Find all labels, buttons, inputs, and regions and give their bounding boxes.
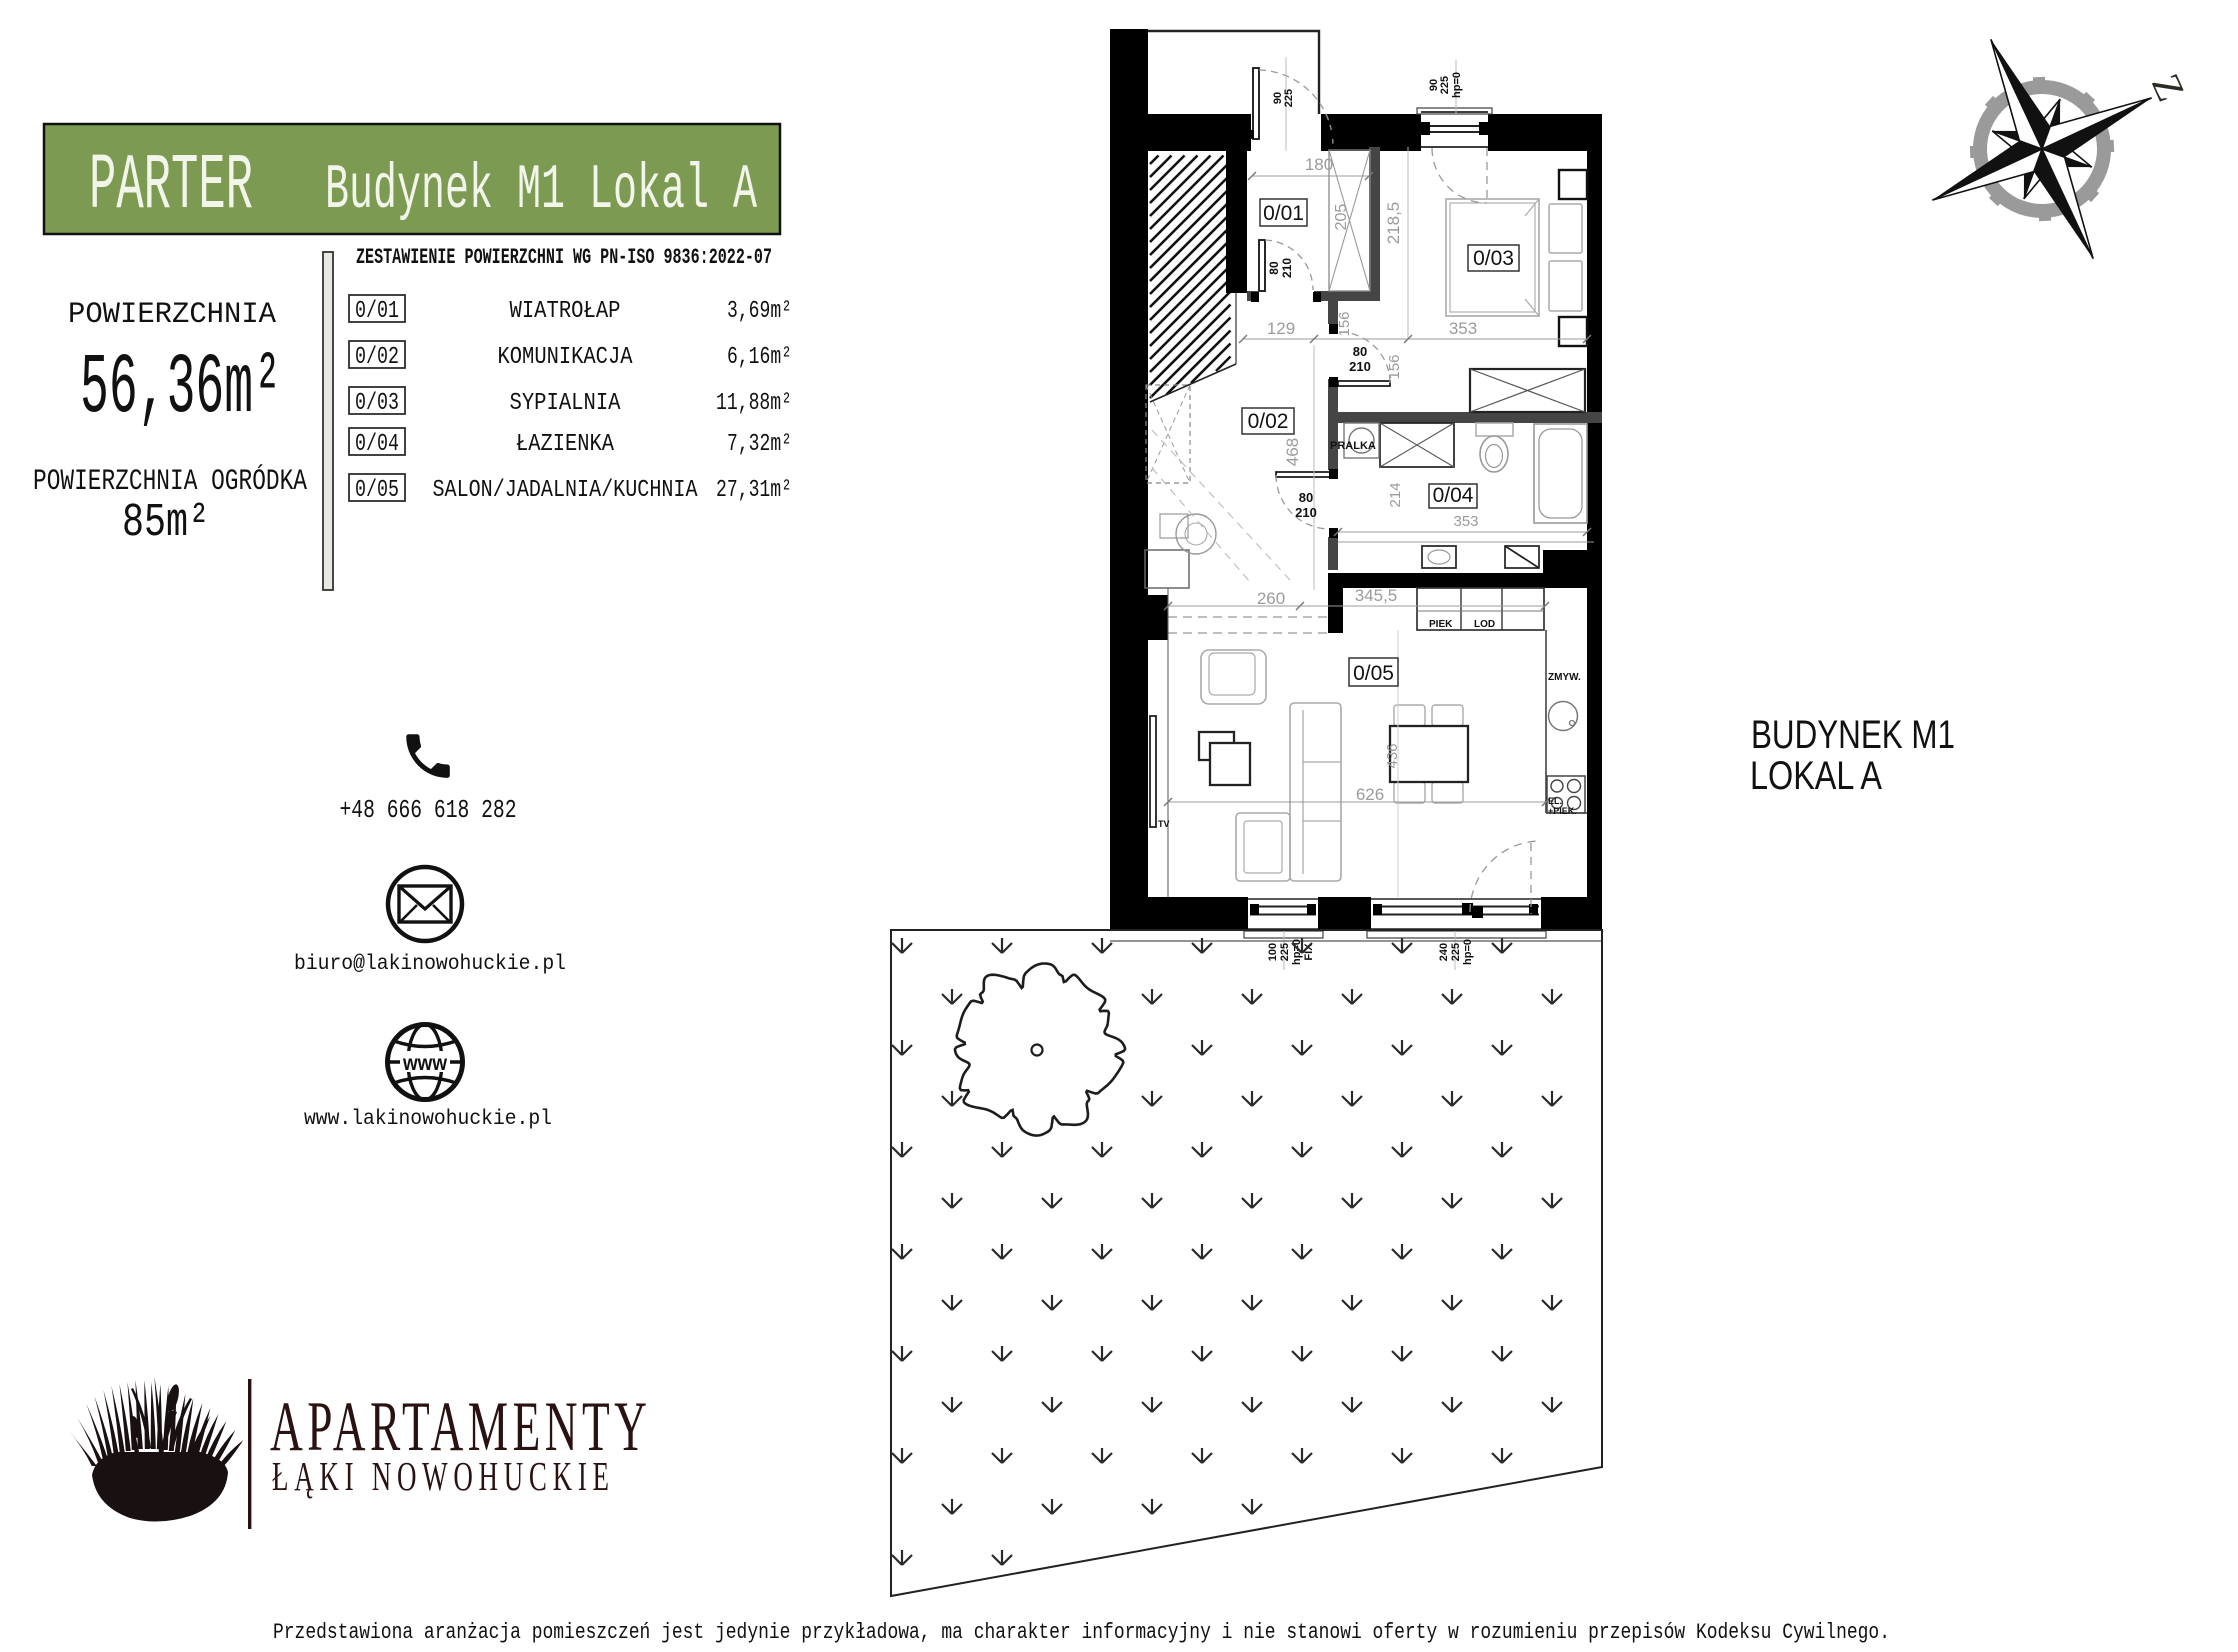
svg-text:+48 666 618 282: +48 666 618 282 [340,795,517,825]
svg-text:PRALKA: PRALKA [1330,440,1376,452]
svg-text:210: 210 [1280,258,1294,278]
svg-text:hp=0: hp=0 [1462,939,1474,965]
svg-text:0/02: 0/02 [355,344,399,371]
svg-text:214: 214 [1387,482,1404,507]
svg-text:180: 180 [1305,155,1333,174]
svg-text:80: 80 [1267,261,1281,275]
svg-text:0/01: 0/01 [355,298,399,325]
svg-text:TV: TV [1158,819,1170,829]
svg-text:436: 436 [1384,743,1401,768]
svg-text:345,5: 345,5 [1355,586,1398,605]
svg-text:80: 80 [1353,344,1367,359]
svg-text:6,16m²: 6,16m² [727,344,792,371]
svg-text:0/02: 0/02 [1248,410,1289,433]
svg-text:353: 353 [1449,319,1477,338]
svg-text:210: 210 [1349,359,1371,374]
svg-text:www.lakinowohuckie.pl: www.lakinowohuckie.pl [304,1108,552,1131]
svg-text:LOD: LOD [1474,619,1495,630]
svg-text:ZESTAWIENIE POWIERZCHNI WG PN-: ZESTAWIENIE POWIERZCHNI WG PN-ISO 9836:2… [356,245,772,270]
svg-text:7,32m²: 7,32m² [727,431,792,458]
svg-text:0/05: 0/05 [355,477,399,504]
svg-text:218,5: 218,5 [1384,202,1403,245]
svg-text:WIATROŁAP: WIATROŁAP [510,298,621,325]
svg-text:205: 205 [1333,204,1350,231]
svg-text:100: 100 [1267,943,1279,961]
svg-text:BUDYNEK M1: BUDYNEK M1 [1751,713,1955,757]
svg-text:225: 225 [1283,89,1295,107]
svg-text:156: 156 [1336,311,1353,336]
svg-text:0/05: 0/05 [1353,662,1394,685]
svg-text:ZMYW.: ZMYW. [1548,672,1581,683]
svg-text:www: www [402,1052,447,1075]
svg-text:85m²: 85m² [122,497,210,550]
svg-text:225: 225 [1439,76,1451,94]
svg-text:56,36m²: 56,36m² [80,340,282,437]
svg-text:225: 225 [1279,943,1291,961]
svg-text:129: 129 [1267,319,1295,338]
svg-text:Budynek M1 Lokal A: Budynek M1 Lokal A [325,155,757,226]
svg-text:KOMUNIKACJA: KOMUNIKACJA [498,344,633,371]
svg-text:EL.: EL. [1548,796,1562,806]
svg-text:PARTER: PARTER [89,141,253,231]
svg-text:27,31m²: 27,31m² [716,477,792,504]
svg-text:0/01: 0/01 [1263,202,1304,225]
svg-text:240: 240 [1438,943,1450,961]
svg-text:468: 468 [1283,438,1302,466]
svg-text:POWIERZCHNIA: POWIERZCHNIA [68,298,276,332]
svg-text:260: 260 [1257,589,1285,608]
svg-text:SYPIALNIA: SYPIALNIA [510,390,622,417]
svg-text:11,88m²: 11,88m² [716,390,792,417]
svg-text:80: 80 [1299,490,1313,505]
svg-text:0/03: 0/03 [1473,247,1514,270]
svg-text:+PIEK.: +PIEK. [1548,806,1577,816]
svg-text:156: 156 [1386,354,1403,379]
svg-text:225: 225 [1450,943,1462,961]
svg-text:hp=0: hp=0 [1451,72,1463,98]
svg-text:0/04: 0/04 [355,431,399,458]
svg-text:ŁAZIENKA: ŁAZIENKA [516,431,615,458]
svg-text:ŁĄKI NOWOHUCKIE: ŁĄKI NOWOHUCKIE [272,1453,615,1499]
svg-text:LOKAL A: LOKAL A [1750,754,1882,798]
svg-text:biuro@lakinowohuckie.pl: biuro@lakinowohuckie.pl [294,953,566,976]
svg-text:0/03: 0/03 [355,390,399,417]
svg-text:626: 626 [1356,785,1384,804]
svg-text:Przedstawiona aranżacja pomies: Przedstawiona aranżacja pomieszczeń jest… [273,1620,1890,1645]
svg-text:POWIERZCHNIA OGRÓDKA: POWIERZCHNIA OGRÓDKA [33,464,307,499]
svg-text:SALON/JADALNIA/KUCHNIA: SALON/JADALNIA/KUCHNIA [433,477,698,504]
svg-text:210: 210 [1295,505,1317,520]
svg-text:353: 353 [1453,513,1478,530]
svg-text:3,69m²: 3,69m² [727,298,792,325]
svg-text:0/04: 0/04 [1433,484,1474,507]
svg-text:PIEK: PIEK [1429,619,1453,630]
